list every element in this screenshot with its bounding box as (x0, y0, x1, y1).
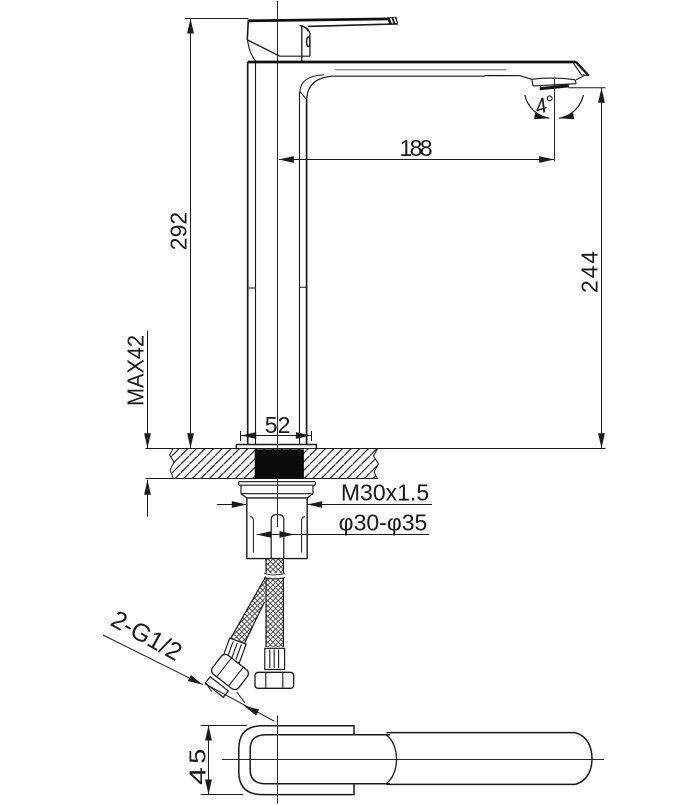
svg-text:φ30-φ35: φ30-φ35 (339, 510, 428, 536)
svg-text:292: 292 (166, 212, 192, 250)
svg-text:188: 188 (400, 135, 433, 161)
svg-text:52: 52 (265, 412, 291, 438)
svg-text:MAX42: MAX42 (123, 335, 149, 406)
svg-text:5: 5 (185, 749, 211, 764)
svg-text:M30x1.5: M30x1.5 (341, 480, 429, 506)
svg-text:244: 244 (577, 251, 603, 293)
svg-text:4: 4 (185, 767, 211, 785)
